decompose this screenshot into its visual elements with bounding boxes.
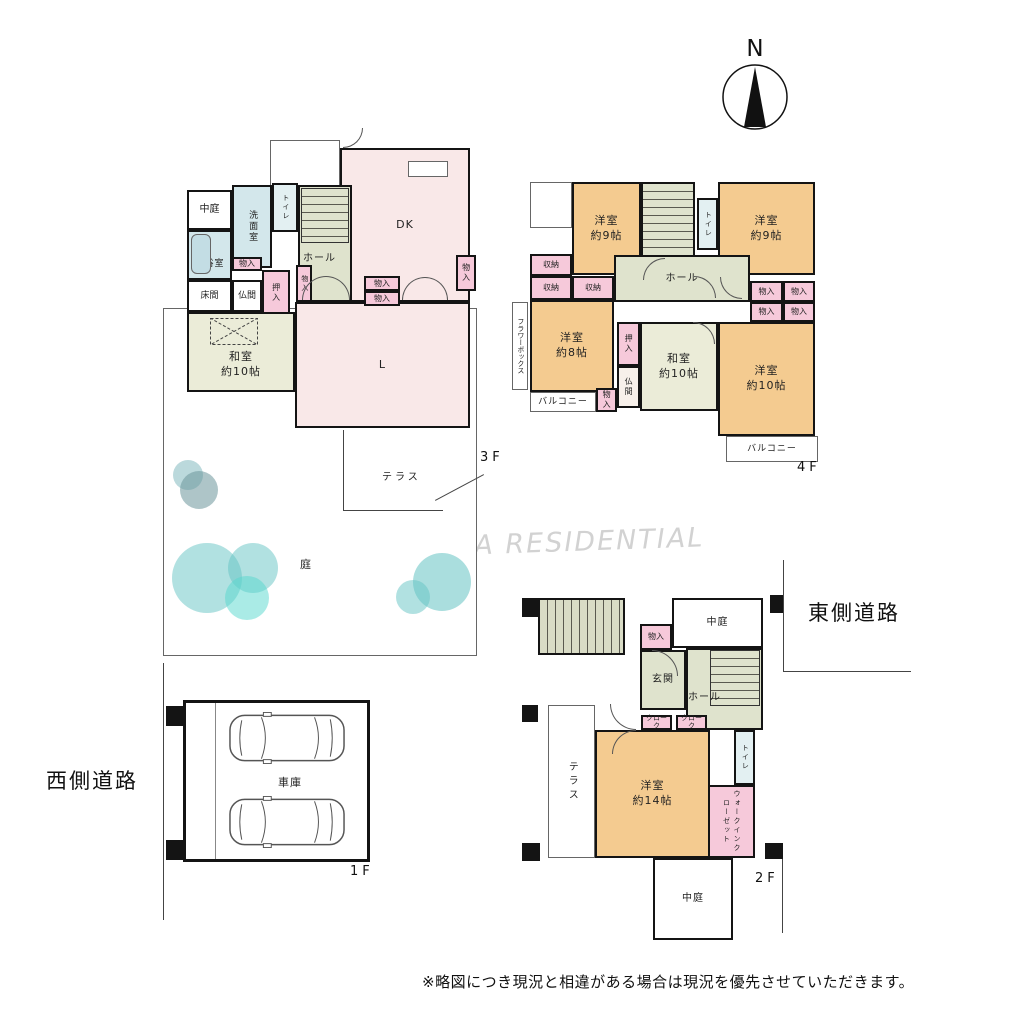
f3-room-butsuma: 仏間: [232, 280, 262, 312]
monoiri-label: 物入: [239, 259, 255, 268]
east-road-line: [783, 671, 911, 672]
car-icon: [228, 796, 346, 848]
f3-room-tokonoma: 床間: [187, 280, 232, 312]
cloak-label: クローク: [678, 715, 705, 730]
garage-label: 車庫: [278, 774, 302, 790]
garage-inner-line: [215, 703, 216, 859]
f2-outdoor-stairs: [538, 598, 625, 655]
east-road-line: [783, 560, 784, 672]
f3-closet-monoiri-right: 物入: [456, 255, 476, 291]
f4-toilet-label: トイレ: [704, 211, 712, 238]
f3-room-dk: DK: [340, 148, 470, 302]
compass-icon: [720, 61, 790, 131]
f3-bathtub-icon: [191, 234, 211, 274]
oshiire-label: 押入: [271, 283, 280, 303]
flower-box-label: フラワーボックス: [516, 318, 524, 374]
nakaniwa-label: 中庭: [682, 892, 704, 906]
monoiri-label: 物入: [602, 390, 611, 410]
compass: N: [720, 38, 790, 134]
f2-closet-monoiri: 物入: [640, 624, 672, 650]
f4-bed9l-size: 約9帖: [591, 229, 623, 244]
monoiri-label: 物入: [374, 279, 390, 288]
f4-closet-monoiri-2: 物入: [783, 281, 815, 302]
f4-bed9l-name: 洋室: [595, 214, 619, 229]
f4-bed9r-name: 洋室: [755, 214, 779, 229]
wall-block: [522, 598, 539, 617]
f4-flower-box: フラワーボックス: [512, 302, 528, 390]
f2-cloak-a: クローク: [641, 715, 672, 730]
east-road-line: [782, 859, 783, 933]
shuno-label: 収納: [585, 283, 601, 292]
f4-tag: 4F: [797, 460, 821, 475]
tree-icon: [225, 576, 269, 620]
f3-room-senmen: 洗面室: [232, 185, 272, 268]
f4-closet-shuno-b: 収納: [530, 276, 572, 300]
f4-room-bed10: 洋室 約10帖: [718, 322, 815, 436]
door-arc-icon: [610, 704, 636, 730]
f4-butsuma-label: 仏間: [624, 377, 633, 397]
shuno-label: 収納: [543, 283, 559, 292]
f4-bed8-name: 洋室: [560, 331, 584, 346]
f3-void: [270, 140, 340, 187]
f3-room-living: L: [295, 302, 470, 428]
f4-closet-monoiri-5: 物入: [596, 388, 617, 412]
f2-hall-label: ホール: [688, 688, 721, 703]
monoiri-label: 物入: [648, 632, 664, 641]
oshiire-label: 押入: [624, 334, 633, 354]
f4-closet-monoiri-4: 物入: [783, 302, 815, 322]
f3-room-toilet: トイレ: [272, 183, 298, 232]
compass-n-label: N: [720, 38, 790, 61]
f2-terrace: テラス: [548, 705, 595, 858]
f4-closet-monoiri-3: 物入: [750, 302, 783, 322]
monoiri-label: 物入: [374, 294, 390, 303]
f3-washitsu-name: 和室: [229, 350, 253, 365]
monoiri-label: 物入: [791, 287, 807, 296]
f3-hall-label: ホール: [303, 249, 336, 264]
nakaniwa-label: 中庭: [707, 616, 729, 630]
f4-bed10-name: 洋室: [755, 364, 779, 379]
f3-butsuma-label: 仏間: [238, 291, 256, 301]
f4-balcony-left: バルコニー: [530, 392, 596, 412]
f4-bed9r-size: 約9帖: [751, 229, 783, 244]
wall-block: [166, 706, 185, 726]
wall-block: [765, 843, 783, 859]
f4-void: [530, 182, 572, 228]
f3-tokonoma-label: 床間: [200, 291, 218, 301]
garden-label: 庭: [300, 556, 312, 572]
f2-nakaniwa-bottom: 中庭: [653, 858, 733, 940]
f3-closet-monoiri-a: 物入: [364, 276, 400, 291]
disclaimer-text: ※略図につき現況と相違がある場合は現況を優先させていただきます。: [422, 971, 914, 992]
monoiri-label: 物入: [791, 307, 807, 316]
monoiri-label: 物入: [461, 263, 470, 283]
f2-nakaniwa-top: 中庭: [672, 598, 763, 648]
f3-senmen-label: 洗面室: [247, 210, 257, 243]
floorplan-canvas: N FUTABA RESIDENTIAL 庭 テラス DK L 中庭 洗面室 ト…: [0, 0, 1013, 1023]
f3-washitsu-size: 約10帖: [221, 365, 261, 380]
f2-room-wic: ウォークインクローゼット: [708, 785, 755, 858]
f4-closet-shuno-c: 収納: [572, 276, 614, 300]
f3-stairs: [301, 188, 349, 243]
f4-stairs: [641, 182, 695, 258]
f2-room-toilet: トイレ: [734, 730, 755, 785]
f3-dk-label: DK: [396, 218, 414, 233]
f2-toilet-label: トイレ: [741, 744, 749, 771]
wall-block: [522, 843, 540, 861]
f4-room-bed8: 洋室 約8帖: [530, 300, 614, 392]
shuno-label: 収納: [543, 260, 559, 269]
wic-label: ウォークインクローゼット: [721, 787, 742, 856]
monoiri-label: 物入: [759, 307, 775, 316]
f4-bed10-size: 約10帖: [747, 379, 787, 394]
f4-washitsu-name: 和室: [667, 352, 691, 367]
f3-closet-monoiri: 物入: [232, 257, 262, 271]
f2-bed14-name: 洋室: [641, 779, 665, 794]
terrace-label-3f: テラス: [382, 468, 421, 483]
f4-balcony-bottom: バルコニー: [726, 436, 818, 462]
balcony-label: バルコニー: [747, 443, 797, 455]
door-arc-icon: [343, 128, 363, 148]
wall-block: [166, 840, 185, 860]
f4-closet-oshiire: 押入: [617, 322, 640, 366]
f4-room-toilet: トイレ: [697, 198, 718, 250]
f2-tag: 2F: [755, 871, 779, 886]
f4-bed8-size: 約8帖: [556, 346, 588, 361]
cloak-label: クローク: [643, 715, 670, 730]
f2-cloak-b: クローク: [676, 715, 707, 730]
east-road-label: 東側道路: [808, 597, 900, 627]
west-road-label: 西側道路: [46, 765, 138, 795]
f2-bed14-size: 約14帖: [633, 794, 673, 809]
balcony-label: バルコニー: [538, 396, 588, 408]
tree-icon: [396, 580, 430, 614]
west-road-line: [163, 663, 164, 920]
terrace-label: テラス: [566, 761, 578, 803]
f3-living-label: L: [379, 358, 386, 373]
car-icon: [228, 712, 346, 764]
f3-toilet-label: トイレ: [281, 194, 289, 221]
f4-closet-shuno-a: 収納: [530, 254, 572, 276]
tree-icon: [180, 471, 218, 509]
f3-tag: 3F: [480, 450, 504, 465]
f4-washitsu-size: 約10帖: [659, 367, 699, 382]
f3-closet-oshiire: 押入: [262, 270, 290, 315]
f3-nakaniwa-label: 中庭: [200, 204, 220, 216]
f1-tag: 1F: [350, 864, 374, 879]
f3-room-nakaniwa: 中庭: [187, 190, 232, 230]
f4-closet-monoiri-1: 物入: [750, 281, 783, 302]
wall-block: [770, 595, 783, 613]
f3-kitchen-counter: [408, 161, 448, 177]
f3-closet-monoiri-b: 物入: [364, 291, 400, 306]
wall-block: [522, 705, 538, 722]
monoiri-label: 物入: [759, 287, 775, 296]
f4-room-butsuma: 仏間: [617, 366, 640, 408]
tatami-marker-icon: [210, 318, 258, 345]
